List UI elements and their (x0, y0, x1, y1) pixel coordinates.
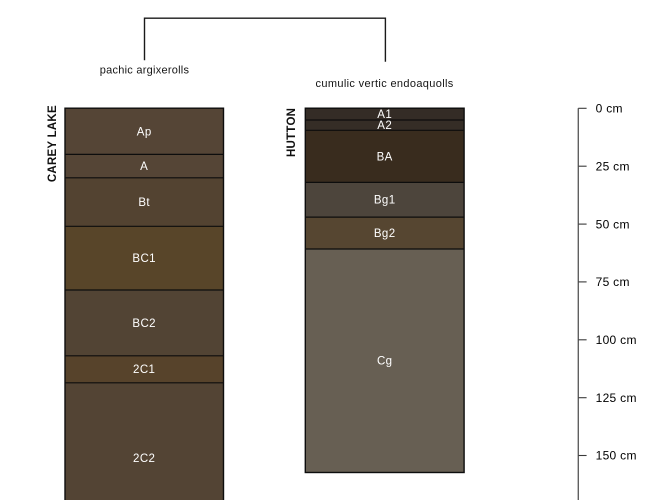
svg-text:Cg: Cg (377, 356, 393, 368)
svg-text:HUTTON: HUTTON (286, 108, 298, 157)
svg-text:BC2: BC2 (132, 318, 156, 330)
svg-text:Ap: Ap (137, 126, 152, 138)
svg-text:50 cm: 50 cm (596, 217, 630, 231)
svg-text:pachic argixerolls: pachic argixerolls (100, 65, 190, 77)
svg-text:A: A (140, 161, 148, 173)
svg-text:CAREY LAKE: CAREY LAKE (47, 105, 59, 182)
svg-text:125 cm: 125 cm (596, 391, 637, 405)
svg-text:A2: A2 (377, 120, 392, 132)
svg-text:Bg1: Bg1 (374, 195, 396, 207)
svg-text:cumulic vertic endoaquolls: cumulic vertic endoaquolls (316, 78, 454, 90)
svg-text:25 cm: 25 cm (596, 159, 630, 173)
svg-text:75 cm: 75 cm (596, 275, 630, 289)
svg-text:BA: BA (377, 151, 393, 163)
svg-text:0 cm: 0 cm (596, 102, 623, 116)
svg-text:Bg2: Bg2 (374, 228, 396, 240)
svg-text:100 cm: 100 cm (596, 333, 637, 347)
svg-text:2C2: 2C2 (133, 453, 155, 465)
svg-text:A1: A1 (377, 109, 392, 121)
svg-text:BC1: BC1 (132, 253, 156, 265)
svg-text:Bt: Bt (138, 197, 150, 209)
svg-text:150 cm: 150 cm (596, 449, 637, 463)
svg-text:2C1: 2C1 (133, 364, 155, 376)
